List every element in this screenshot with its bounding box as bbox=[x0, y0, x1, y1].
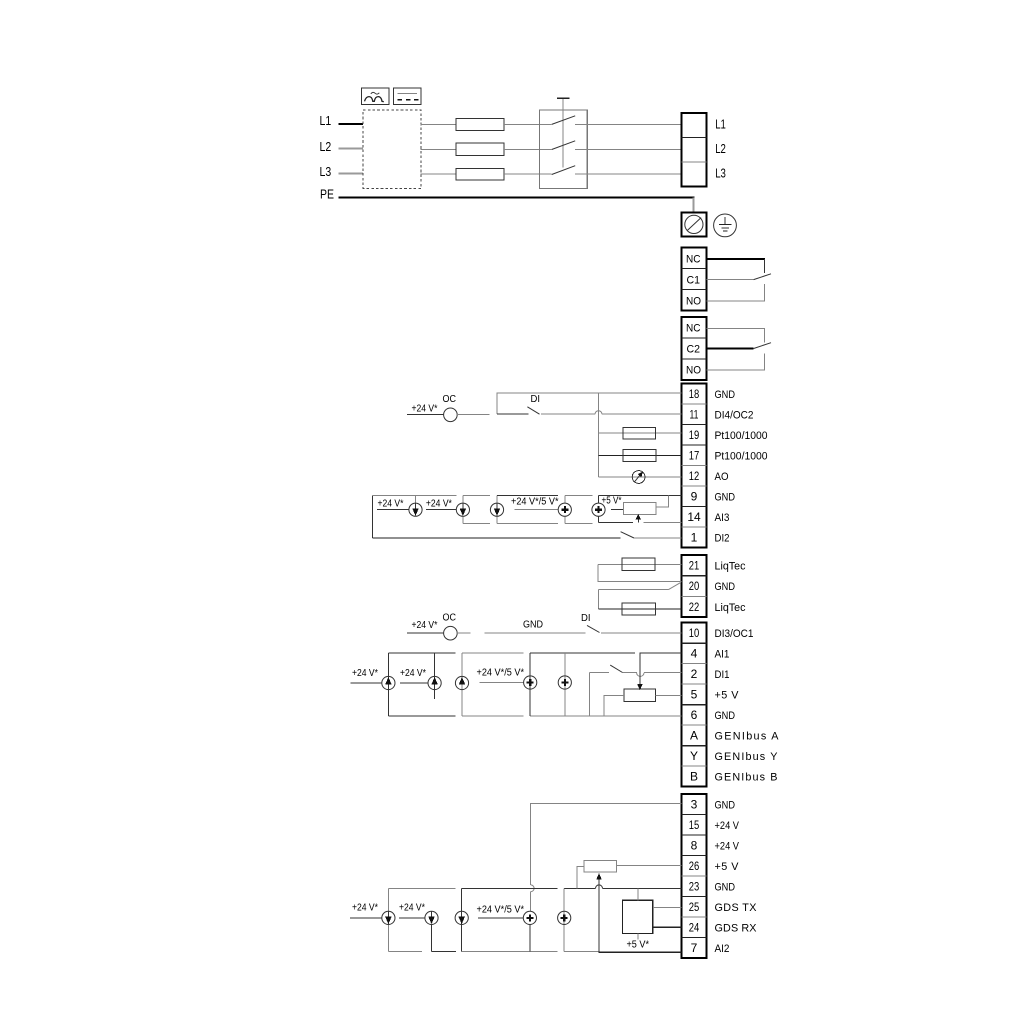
svg-text:L3: L3 bbox=[320, 164, 332, 179]
svg-text:25: 25 bbox=[689, 900, 700, 914]
svg-text:+24 V*/5 V*: +24 V*/5 V* bbox=[477, 668, 525, 679]
svg-text:9: 9 bbox=[691, 490, 698, 504]
svg-text:A: A bbox=[690, 729, 698, 743]
svg-text:GND: GND bbox=[715, 492, 736, 504]
svg-text:DI3/OC1: DI3/OC1 bbox=[715, 628, 754, 640]
svg-text:2: 2 bbox=[691, 667, 698, 681]
svg-text:24: 24 bbox=[689, 921, 700, 935]
svg-text:DI: DI bbox=[531, 394, 541, 405]
svg-text:NC: NC bbox=[686, 253, 701, 265]
svg-text:GENIbus Y: GENIbus Y bbox=[715, 751, 778, 763]
svg-text:DI2: DI2 bbox=[715, 533, 730, 545]
svg-text:+24 V*/5 V*: +24 V*/5 V* bbox=[477, 904, 525, 915]
svg-text:22: 22 bbox=[689, 600, 700, 614]
svg-text:AI3: AI3 bbox=[715, 512, 730, 524]
svg-text:GND: GND bbox=[715, 581, 736, 593]
svg-text:L2: L2 bbox=[320, 139, 332, 154]
svg-text:L2: L2 bbox=[715, 141, 726, 156]
svg-text:GDS RX: GDS RX bbox=[715, 923, 757, 935]
svg-text:+24 V*: +24 V* bbox=[352, 903, 378, 914]
svg-text:+24 V*: +24 V* bbox=[426, 499, 452, 510]
svg-text:L3: L3 bbox=[715, 166, 726, 181]
svg-text:Y: Y bbox=[690, 749, 698, 763]
svg-text:10: 10 bbox=[689, 626, 700, 640]
svg-text:PE: PE bbox=[320, 187, 334, 202]
svg-text:21: 21 bbox=[689, 559, 700, 573]
svg-text:L1: L1 bbox=[320, 113, 332, 128]
svg-text:6: 6 bbox=[691, 708, 698, 722]
svg-text:+5 V*: +5 V* bbox=[602, 496, 622, 507]
svg-text:+24 V*: +24 V* bbox=[352, 668, 378, 679]
svg-text:GDS TX: GDS TX bbox=[715, 902, 757, 914]
svg-text:+24 V*: +24 V* bbox=[412, 404, 438, 415]
svg-text:AO: AO bbox=[715, 471, 729, 483]
svg-text:12: 12 bbox=[689, 469, 700, 483]
svg-text:GND: GND bbox=[715, 710, 736, 722]
svg-text:NO: NO bbox=[686, 365, 701, 377]
svg-text:DI4/OC2: DI4/OC2 bbox=[715, 410, 754, 422]
svg-text:NO: NO bbox=[686, 295, 701, 307]
svg-text:GND: GND bbox=[715, 800, 736, 812]
svg-text:Pt100/1000: Pt100/1000 bbox=[715, 430, 768, 442]
svg-text:GND: GND bbox=[715, 882, 736, 894]
svg-text:+5 V*: +5 V* bbox=[627, 939, 650, 950]
svg-text:NC: NC bbox=[686, 323, 701, 335]
svg-text:L1: L1 bbox=[715, 116, 726, 131]
svg-text:18: 18 bbox=[689, 387, 700, 401]
svg-text:C1: C1 bbox=[687, 274, 701, 286]
svg-text:DI: DI bbox=[581, 613, 591, 624]
svg-text:+5 V: +5 V bbox=[715, 690, 740, 702]
svg-text:+5 V: +5 V bbox=[715, 861, 740, 873]
svg-text:26: 26 bbox=[689, 859, 700, 873]
svg-text:3: 3 bbox=[691, 798, 698, 812]
svg-text:20: 20 bbox=[689, 579, 700, 593]
svg-text:DI1: DI1 bbox=[715, 669, 730, 681]
svg-text:GND: GND bbox=[523, 620, 543, 631]
svg-text:17: 17 bbox=[689, 449, 700, 463]
svg-text:OC: OC bbox=[443, 613, 457, 624]
svg-text:15: 15 bbox=[689, 818, 700, 832]
svg-text:14: 14 bbox=[687, 510, 701, 524]
svg-text:23: 23 bbox=[689, 880, 700, 894]
svg-text:+24 V: +24 V bbox=[715, 820, 740, 832]
svg-text:1: 1 bbox=[691, 531, 698, 545]
svg-text:+24 V*: +24 V* bbox=[412, 620, 438, 631]
svg-text:GENIbus A: GENIbus A bbox=[715, 731, 780, 743]
svg-text:AI1: AI1 bbox=[715, 649, 730, 661]
svg-text:7: 7 bbox=[691, 941, 698, 955]
svg-text:+24 V*: +24 V* bbox=[400, 668, 426, 679]
svg-text:LiqTec: LiqTec bbox=[715, 561, 747, 573]
svg-text:19: 19 bbox=[689, 428, 700, 442]
svg-text:11: 11 bbox=[690, 408, 699, 422]
svg-text:Pt100/1000: Pt100/1000 bbox=[715, 451, 768, 463]
svg-text:4: 4 bbox=[691, 647, 698, 661]
svg-text:C2: C2 bbox=[687, 344, 701, 356]
svg-text:+24 V*: +24 V* bbox=[399, 903, 425, 914]
svg-text:5: 5 bbox=[691, 688, 698, 702]
svg-text:+24 V: +24 V bbox=[715, 841, 740, 853]
svg-text:AI2: AI2 bbox=[715, 943, 730, 955]
svg-text:GND: GND bbox=[715, 389, 736, 401]
svg-text:OC: OC bbox=[443, 394, 457, 405]
svg-text:LiqTec: LiqTec bbox=[715, 602, 747, 614]
svg-text:+24 V*/5 V*: +24 V*/5 V* bbox=[511, 496, 559, 507]
svg-text:+24 V*: +24 V* bbox=[378, 499, 404, 510]
svg-text:GENIbus B: GENIbus B bbox=[715, 772, 778, 784]
svg-text:8: 8 bbox=[691, 839, 698, 853]
svg-text:B: B bbox=[690, 770, 698, 784]
